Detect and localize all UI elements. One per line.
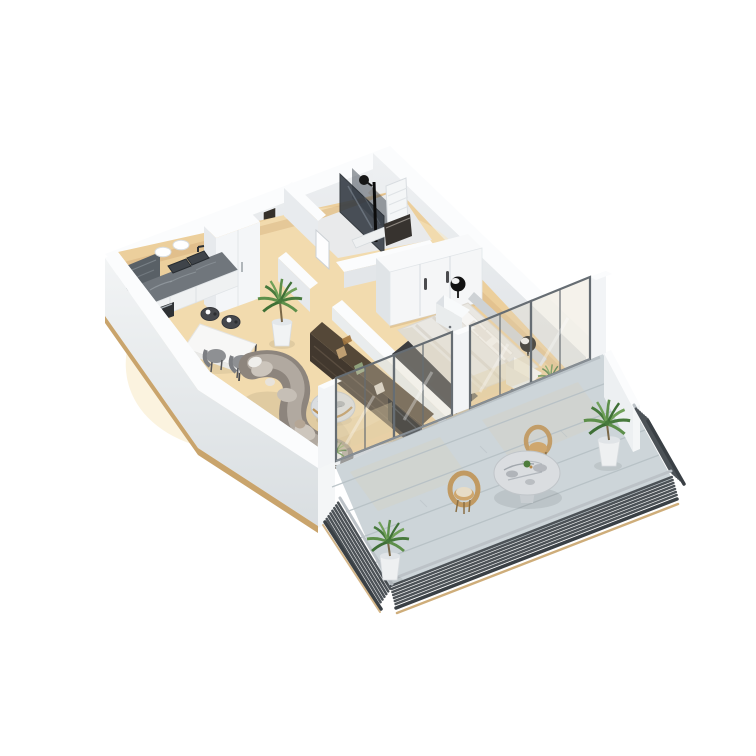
- plant-pot: [272, 322, 292, 346]
- faucet: [198, 246, 204, 247]
- chair-leg: [211, 362, 212, 372]
- plant-pot: [380, 556, 400, 580]
- shower-head: [359, 175, 369, 185]
- glass-column: [318, 378, 336, 469]
- marble-blotch: [533, 464, 547, 472]
- chair-leg: [237, 368, 238, 378]
- wall-plate: [173, 240, 189, 250]
- wardrobe-handle: [446, 271, 449, 283]
- chair-leg: [469, 500, 470, 512]
- floorplan-render: [0, 0, 756, 756]
- accent-pillow: [265, 378, 275, 386]
- accent-pillow: [295, 420, 306, 429]
- glass-column: [452, 325, 470, 415]
- plant-pot: [598, 440, 620, 466]
- wall-plate: [155, 247, 171, 257]
- bar-stool: [201, 308, 219, 321]
- balcony-table-top: [494, 451, 560, 495]
- chair-cushion: [456, 487, 472, 497]
- marble-blotch: [525, 479, 535, 485]
- chair-leg: [221, 360, 222, 370]
- table-centerpiece-gold: [530, 466, 533, 469]
- knob: [449, 326, 452, 329]
- glass-column: [590, 271, 606, 359]
- bar-stool: [222, 316, 240, 329]
- floorplan-stage: [0, 0, 756, 756]
- wardrobe-handle: [424, 278, 427, 290]
- marble-blotch: [506, 471, 518, 478]
- table-centerpiece: [524, 461, 531, 468]
